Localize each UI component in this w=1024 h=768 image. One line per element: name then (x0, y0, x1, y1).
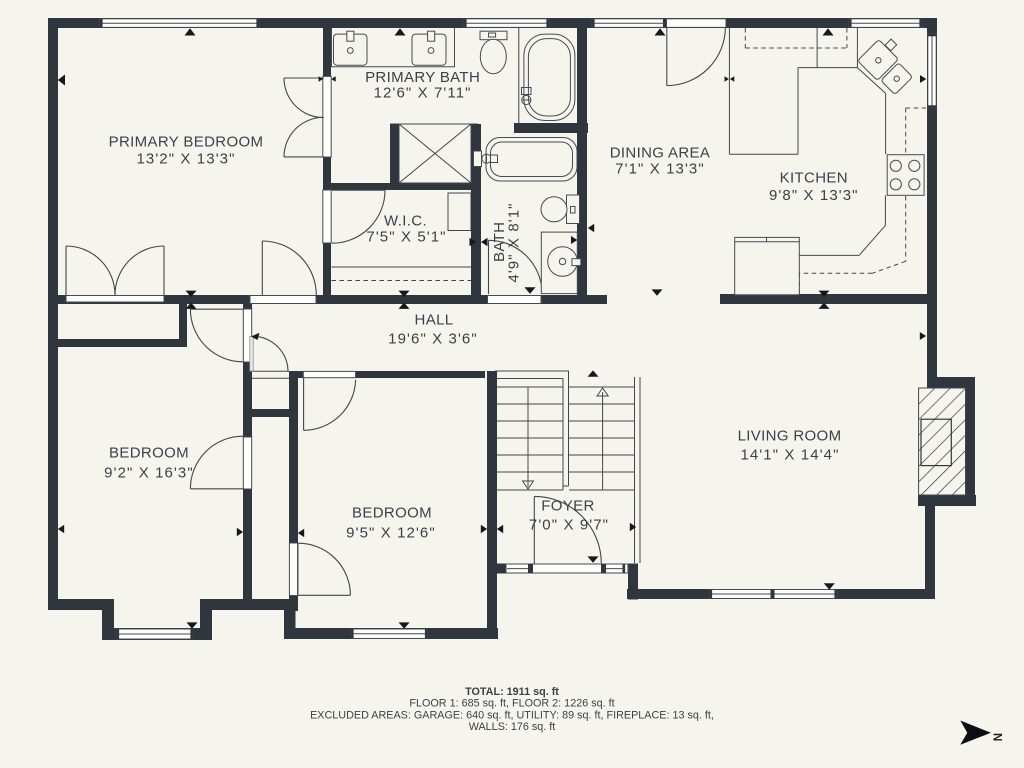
svg-text:W.I.C.: W.I.C. (384, 213, 427, 230)
svg-text:PRIMARY BEDROOM: PRIMARY BEDROOM (109, 134, 264, 151)
svg-text:BEDROOM: BEDROOM (109, 445, 189, 462)
svg-text:7'5" X 5'1": 7'5" X 5'1" (366, 229, 446, 246)
svg-text:4'9" X 8'1": 4'9" X 8'1" (506, 202, 523, 282)
svg-text:BEDROOM: BEDROOM (352, 505, 432, 522)
svg-text:9'8" X 13'3": 9'8" X 13'3" (769, 187, 859, 204)
svg-text:KITCHEN: KITCHEN (780, 170, 848, 187)
svg-text:7'0" X 9'7": 7'0" X 9'7" (529, 517, 609, 534)
svg-text:WALLS: 176 sq. ft: WALLS: 176 sq. ft (469, 721, 556, 733)
svg-text:FLOOR 1: 685 sq. ft, FLOOR 2:: FLOOR 1: 685 sq. ft, FLOOR 2: 1226 sq. f… (409, 698, 614, 710)
svg-text:PRIMARY BATH: PRIMARY BATH (365, 69, 480, 86)
svg-text:9'2" X 16'3": 9'2" X 16'3" (104, 465, 194, 482)
svg-text:13'2" X 13'3": 13'2" X 13'3" (136, 151, 235, 168)
svg-text:N: N (991, 733, 1003, 741)
svg-text:DINING AREA: DINING AREA (610, 145, 711, 162)
svg-text:HALL: HALL (415, 312, 454, 329)
svg-text:14'1" X 14'4": 14'1" X 14'4" (740, 447, 839, 464)
svg-text:TOTAL: 1911 sq. ft: TOTAL: 1911 sq. ft (465, 686, 559, 698)
svg-text:7'1" X 13'3": 7'1" X 13'3" (615, 161, 705, 178)
svg-text:LIVING ROOM: LIVING ROOM (738, 428, 842, 445)
svg-text:12'6" X 7'11": 12'6" X 7'11" (374, 85, 472, 102)
svg-text:9'5" X 12'6": 9'5" X 12'6" (346, 525, 436, 542)
svg-text:19'6" X 3'6": 19'6" X 3'6" (388, 331, 478, 348)
svg-text:FOYER: FOYER (541, 498, 594, 515)
svg-text:EXCLUDED AREAS: GARAGE: 640 sq: EXCLUDED AREAS: GARAGE: 640 sq. ft, UTIL… (310, 709, 714, 721)
